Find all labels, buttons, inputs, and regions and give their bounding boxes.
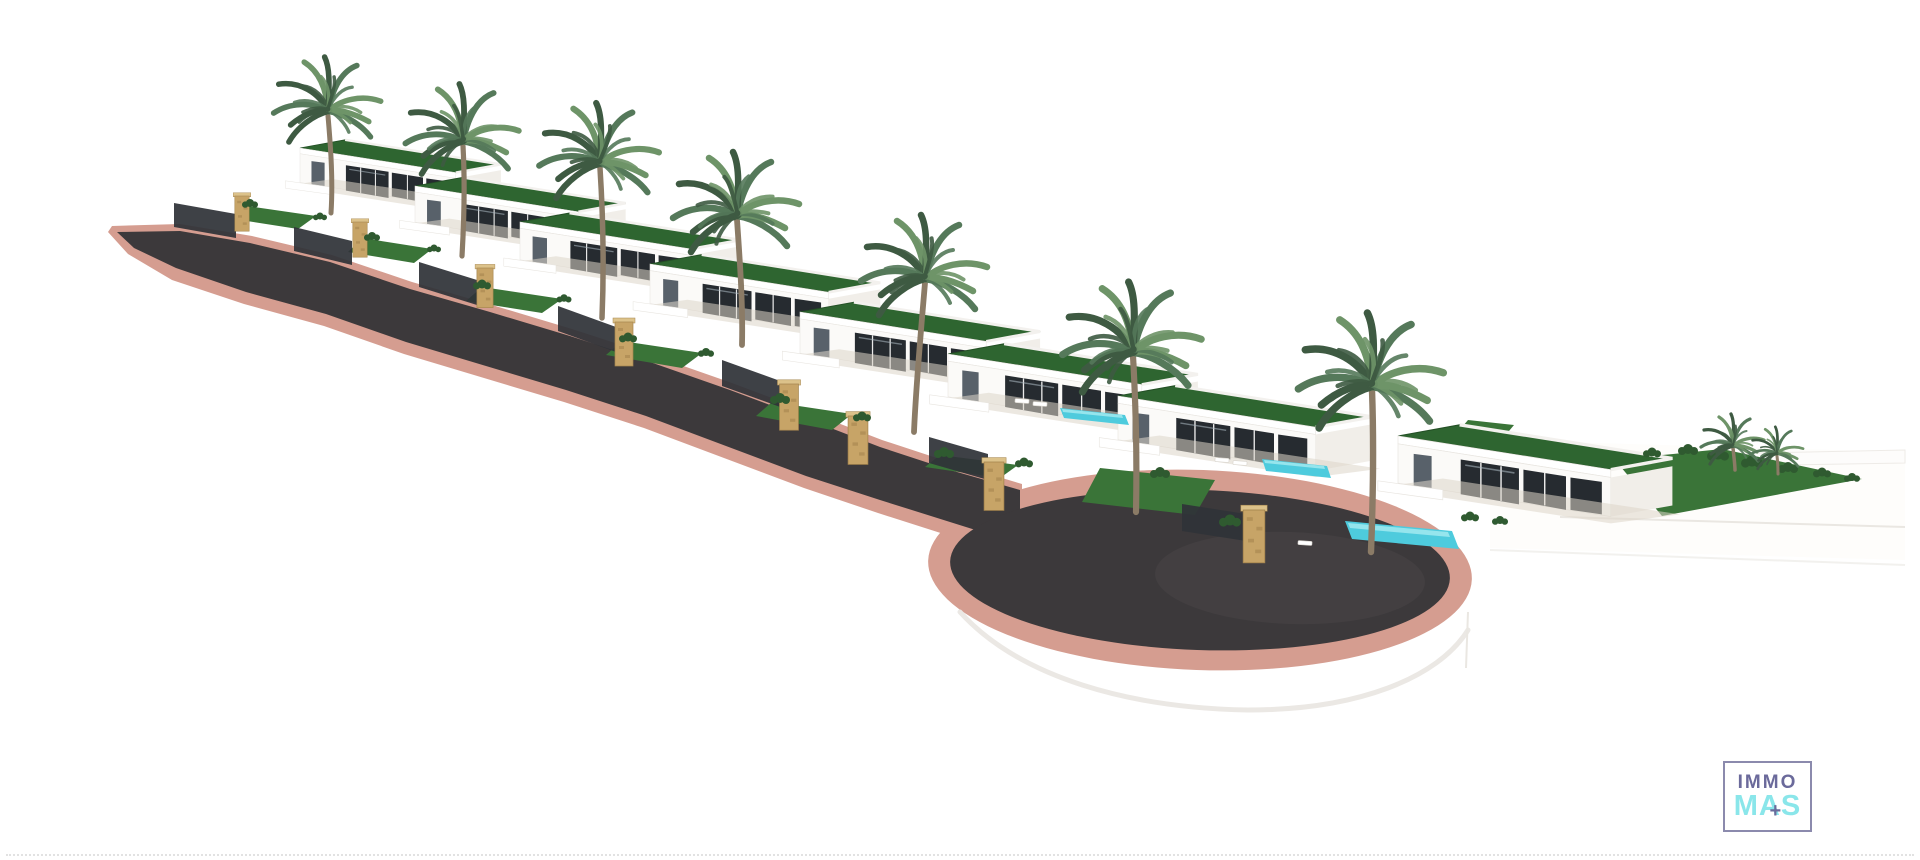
- stone-pillar: [777, 380, 800, 430]
- sun-lounger: [1298, 541, 1312, 546]
- logo-text-mas: MAS +: [1734, 793, 1801, 820]
- sky-background: [0, 0, 1920, 860]
- sun-lounger: [1015, 399, 1029, 404]
- sun-lounger: [1215, 458, 1229, 463]
- render-image: IMMO MAS +: [0, 0, 1920, 860]
- sun-lounger: [1233, 461, 1247, 466]
- immomas-logo: IMMO MAS +: [1723, 761, 1812, 832]
- stone-pillar: [233, 193, 251, 231]
- bottom-dotted-border: [6, 854, 1914, 856]
- sun-lounger: [1033, 402, 1047, 407]
- stone-pillar: [982, 458, 1006, 511]
- scene-svg: [0, 0, 1920, 860]
- logo-plus-icon: +: [1769, 801, 1782, 821]
- stone-pillar: [1241, 505, 1267, 563]
